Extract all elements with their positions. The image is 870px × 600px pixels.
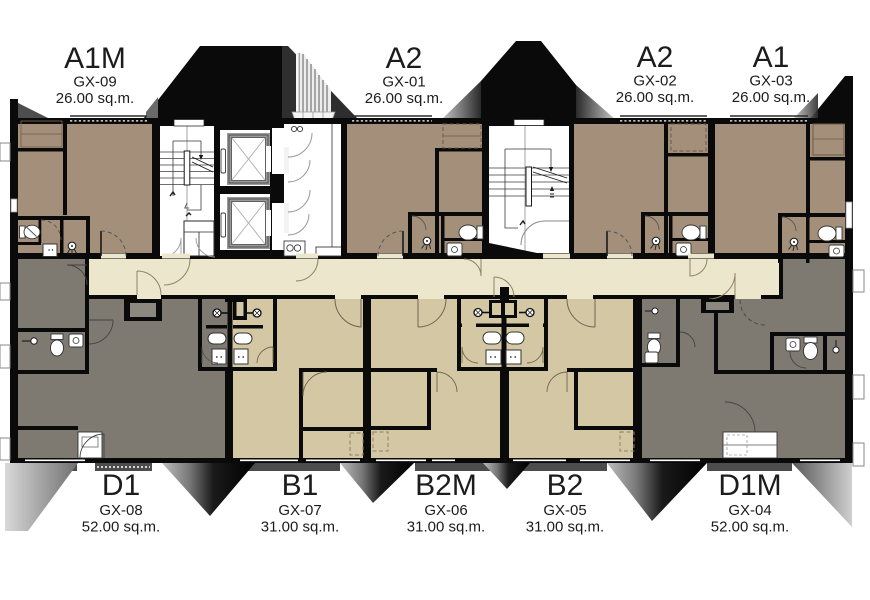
svg-text:52.00 sq.m.: 52.00 sq.m. <box>82 519 160 536</box>
svg-text:GX-07: GX-07 <box>278 502 321 519</box>
svg-text:A2: A2 <box>637 41 674 74</box>
svg-text:26.00 sq.m.: 26.00 sq.m. <box>56 90 134 107</box>
svg-text:GX-03: GX-03 <box>749 73 792 90</box>
svg-text:GX-05: GX-05 <box>543 502 586 519</box>
svg-text:26.00 sq.m.: 26.00 sq.m. <box>365 90 443 107</box>
svg-text:B2M: B2M <box>415 469 477 502</box>
svg-text:GX-01: GX-01 <box>382 74 425 91</box>
svg-text:GX-06: GX-06 <box>424 502 467 519</box>
svg-text:31.00 sq.m.: 31.00 sq.m. <box>407 519 485 536</box>
svg-text:31.00 sq.m.: 31.00 sq.m. <box>526 519 604 536</box>
svg-text:D1M: D1M <box>718 469 781 502</box>
svg-text:26.00 sq.m.: 26.00 sq.m. <box>616 89 694 106</box>
svg-text:GX-04: GX-04 <box>728 502 771 519</box>
svg-text:GX-08: GX-08 <box>99 502 142 519</box>
svg-text:52.00 sq.m.: 52.00 sq.m. <box>711 519 789 536</box>
svg-text:D1: D1 <box>102 469 140 502</box>
svg-text:GX-09: GX-09 <box>73 74 116 91</box>
svg-text:B1: B1 <box>282 469 319 502</box>
svg-text:26.00 sq.m.: 26.00 sq.m. <box>732 89 810 106</box>
svg-text:GX-02: GX-02 <box>633 73 676 90</box>
svg-text:31.00 sq.m.: 31.00 sq.m. <box>261 519 339 536</box>
svg-text:B2: B2 <box>547 469 584 502</box>
svg-text:A1M: A1M <box>64 42 126 75</box>
svg-text:A1: A1 <box>753 41 790 74</box>
svg-text:A2: A2 <box>386 42 423 75</box>
